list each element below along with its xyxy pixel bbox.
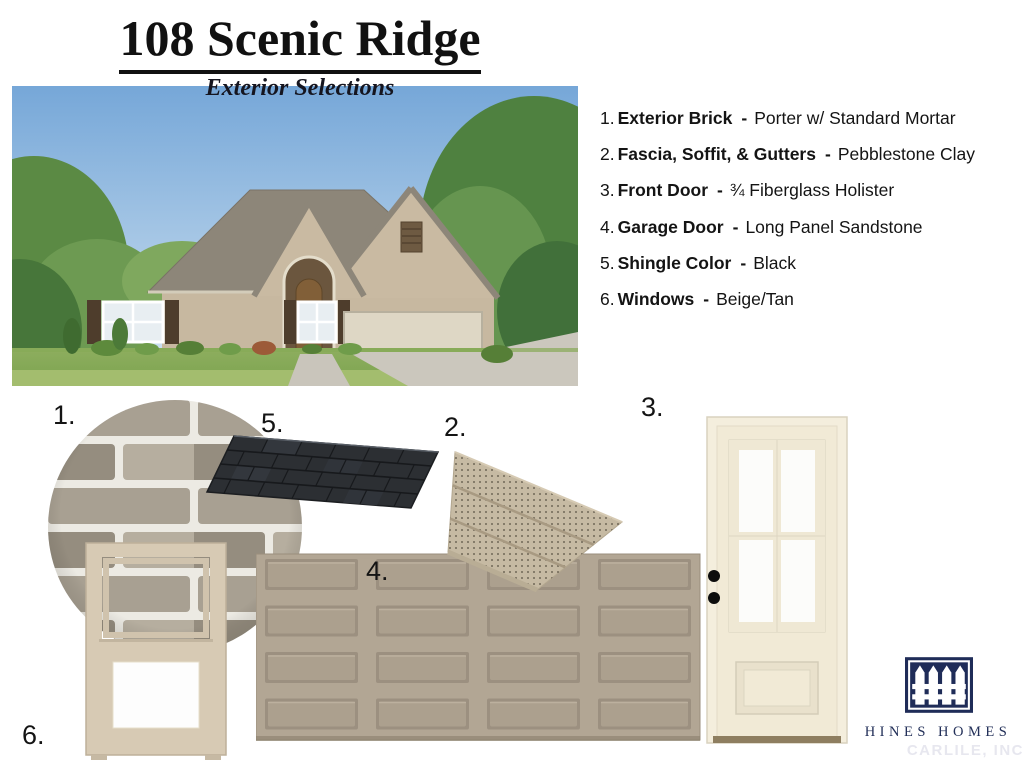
selection-board: 108 Scenic Ridge Exterior Selections 1.E… <box>0 0 1024 768</box>
selection-separator: - <box>703 289 709 309</box>
marker-garage: 4. <box>366 558 389 585</box>
soffit-swatch <box>430 438 640 603</box>
selection-separator: - <box>740 253 746 273</box>
hines-homes-logo <box>905 657 973 713</box>
selection-item-3: 3.Front Door-¾ Fiberglass Holister <box>600 172 1020 208</box>
marker-soffit: 2. <box>444 414 467 441</box>
selection-item-1: 1.Exterior Brick-Porter w/ Standard Mort… <box>600 100 1020 136</box>
header: 108 Scenic Ridge Exterior Selections <box>0 0 600 100</box>
door-deadbolt <box>708 592 720 604</box>
selection-number: 1. <box>600 108 615 128</box>
selection-value: Beige/Tan <box>716 289 794 309</box>
window-right <box>284 300 350 344</box>
selection-separator: - <box>717 180 723 200</box>
selection-value: ¾ Fiberglass Holister <box>730 180 894 200</box>
selection-value: Pebblestone Clay <box>838 144 975 164</box>
page-title: 108 Scenic Ridge <box>0 0 600 74</box>
selection-separator: - <box>825 144 831 164</box>
selection-value: Porter w/ Standard Mortar <box>754 108 955 128</box>
logo-watermark: CARLILE, INC <box>856 742 1024 759</box>
marker-door: 3. <box>641 394 664 421</box>
front-door-swatch <box>704 414 850 748</box>
selection-item-4: 4.Garage Door-Long Panel Sandstone <box>600 209 1020 245</box>
selection-label: Fascia, Soffit, & Gutters <box>618 144 816 164</box>
selection-label: Exterior Brick <box>618 108 733 128</box>
selection-number: 4. <box>600 217 615 237</box>
selection-item-2: 2.Fascia, Soffit, & Gutters-Pebblestone … <box>600 136 1020 172</box>
selection-number: 6. <box>600 289 615 309</box>
page-subtitle: Exterior Selections <box>0 76 600 100</box>
door-threshold <box>713 736 841 743</box>
selection-number: 3. <box>600 180 615 200</box>
selection-item-6: 6.Windows-Beige/Tan <box>600 281 1020 317</box>
upper-sash <box>106 561 206 635</box>
logo-company-name: HINES HOMES <box>852 724 1024 741</box>
selection-value: Long Panel Sandstone <box>745 217 922 237</box>
window-swatch <box>83 541 229 761</box>
marker-window: 6. <box>22 722 45 749</box>
window-left <box>87 300 179 344</box>
selection-label: Shingle Color <box>618 253 732 273</box>
selection-value: Black <box>753 253 796 273</box>
selection-number: 5. <box>600 253 615 273</box>
door-knob <box>708 570 720 582</box>
selection-item-5: 5.Shingle Color-Black <box>600 245 1020 281</box>
selection-separator: - <box>733 217 739 237</box>
selection-separator: - <box>741 108 747 128</box>
selections-list: 1.Exterior Brick-Porter w/ Standard Mort… <box>600 100 1020 317</box>
marker-brick: 1. <box>53 402 76 429</box>
selection-number: 2. <box>600 144 615 164</box>
lower-sash-glass <box>113 662 199 728</box>
gable-vent <box>401 222 422 252</box>
shingle-swatch <box>190 420 460 545</box>
selection-label: Windows <box>618 289 695 309</box>
selection-label: Front Door <box>618 180 708 200</box>
house-photo <box>12 86 578 386</box>
selection-label: Garage Door <box>618 217 724 237</box>
marker-shingle: 5. <box>261 410 284 437</box>
